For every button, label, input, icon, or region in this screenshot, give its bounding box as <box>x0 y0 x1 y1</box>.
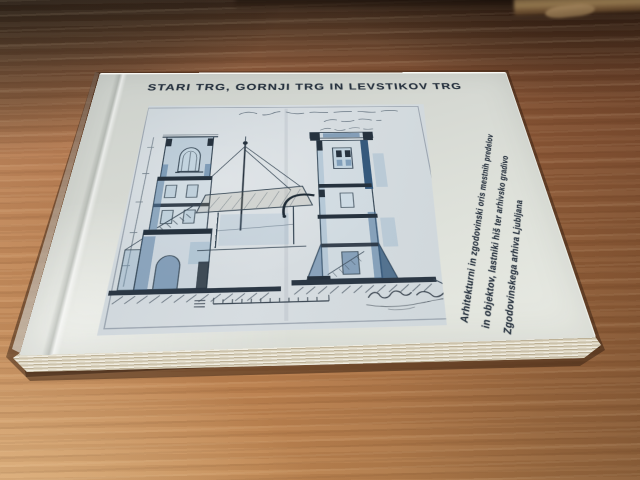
side-text: Arhitekturni in zgodovinski oris mestnih… <box>454 132 534 337</box>
cover-title: STARI TRG, GORNJI TRG IN LEVSTIKOV TRG <box>143 81 467 93</box>
architectural-drawing <box>97 104 468 335</box>
scale-bar <box>194 295 329 307</box>
handwritten-caption <box>238 110 401 134</box>
signature <box>365 290 446 311</box>
book-cover: STARI TRG, GORNJI TRG IN LEVSTIKOV TRG <box>19 72 596 356</box>
drawing-sheet <box>97 104 468 335</box>
photo-scene: STARI TRG, GORNJI TRG IN LEVSTIKOV TRG <box>0 0 640 480</box>
